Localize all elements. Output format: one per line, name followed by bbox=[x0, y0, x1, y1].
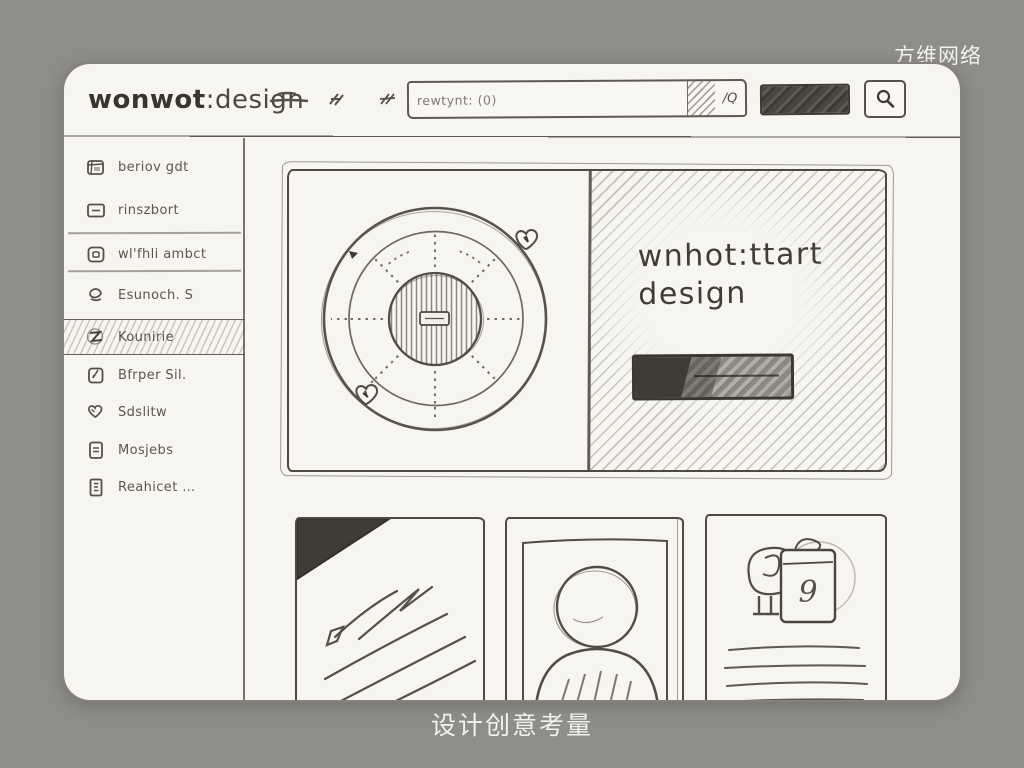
slash-marks-icon[interactable] bbox=[324, 90, 350, 108]
heart-icon bbox=[85, 401, 107, 423]
file-icon bbox=[85, 476, 107, 498]
sidebar-item-5[interactable]: Bfrper Sil. bbox=[64, 358, 245, 392]
hero-headline: wnhot:ttart design bbox=[637, 236, 823, 315]
headline-line2: design bbox=[638, 274, 824, 315]
card-icon bbox=[85, 199, 107, 221]
sidebar-item-label: Sdslitw bbox=[118, 405, 167, 420]
wireframe-sketch-canvas: wonwot:design /Q bbox=[62, 62, 962, 702]
hero-cta-button[interactable] bbox=[632, 353, 794, 400]
page-background: 方维网络 wonwot:design bbox=[0, 0, 1024, 768]
page-caption: 设计创意考量 bbox=[0, 706, 1024, 742]
search-field: /Q bbox=[407, 79, 747, 119]
sidebar-divider bbox=[68, 270, 241, 272]
sidebar-item-label: wl'fhli ambct bbox=[118, 247, 206, 262]
hero-panel: wnhot:ttart design bbox=[287, 169, 887, 472]
search-input[interactable] bbox=[409, 81, 687, 117]
sidebar-item-label: beriov gdt bbox=[118, 160, 189, 175]
badge-icon bbox=[85, 326, 107, 348]
sidebar-item-8[interactable]: Reahicet … bbox=[64, 470, 245, 504]
person-avatar-doodle bbox=[535, 567, 659, 702]
logo-bold-text: wonwot bbox=[88, 85, 206, 115]
gift-doodle-icon: 9 bbox=[748, 539, 855, 622]
cube-icon bbox=[85, 156, 107, 178]
sidebar-item-3[interactable]: Esunoch. S bbox=[64, 278, 245, 312]
cup-icon bbox=[85, 284, 107, 306]
sidebar-item-label: Mosjebs bbox=[118, 443, 173, 458]
hatch-chip-icon bbox=[687, 81, 715, 115]
headline-line1: wnhot:ttart bbox=[637, 236, 823, 277]
content-card-sketch[interactable] bbox=[295, 517, 485, 702]
sidebar-item-label: Bfrper Sil. bbox=[118, 368, 187, 383]
pen-slash-icon[interactable] bbox=[376, 90, 400, 108]
triangle-marker-icon bbox=[349, 251, 358, 259]
search-icon bbox=[874, 88, 896, 110]
sidebar-item-0[interactable]: beriov gdt bbox=[64, 150, 245, 184]
sidebar-item-4-active[interactable]: Kounirie bbox=[64, 319, 245, 355]
profile-card-sketch[interactable] bbox=[505, 517, 684, 702]
sidebar-item-7[interactable]: Mosjebs bbox=[64, 433, 245, 467]
sidebar-item-6[interactable]: Sdslitw bbox=[64, 395, 245, 429]
sidebar: beriov gdt rinszbort wl'fhli ambct bbox=[64, 138, 245, 700]
article-card-sketch[interactable]: 9 bbox=[705, 514, 887, 702]
pen-icon bbox=[85, 364, 107, 386]
search-shortcut-label: /Q bbox=[715, 81, 745, 115]
sidebar-item-2[interactable]: wl'fhli ambct bbox=[64, 237, 245, 271]
panel-icon bbox=[85, 243, 107, 265]
sidebar-item-label: Kounirie bbox=[118, 330, 174, 345]
primary-dark-button[interactable] bbox=[760, 84, 850, 116]
gift-number-label: 9 bbox=[798, 575, 817, 610]
pencil-strokes bbox=[325, 587, 475, 702]
doc-icon bbox=[85, 439, 107, 461]
hero-text-zone: wnhot:ttart design bbox=[590, 171, 885, 470]
sidebar-item-label: Esunoch. S bbox=[118, 288, 193, 303]
menu-lines-icon[interactable] bbox=[266, 90, 312, 106]
header: wonwot:design /Q bbox=[64, 64, 960, 138]
text-lines-doodle bbox=[723, 646, 867, 702]
radial-wheel-sketch bbox=[289, 171, 588, 470]
sidebar-divider bbox=[68, 232, 241, 234]
sidebar-item-1[interactable]: rinszbort bbox=[64, 193, 245, 227]
hero-wheel-zone bbox=[289, 171, 588, 470]
search-button[interactable] bbox=[864, 80, 906, 118]
sidebar-item-label: rinszbort bbox=[118, 203, 179, 218]
sidebar-item-label: Reahicet … bbox=[118, 480, 196, 495]
